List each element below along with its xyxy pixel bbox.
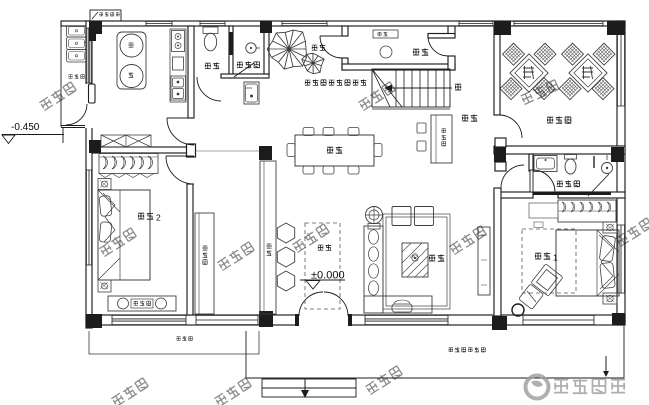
svg-text:-0.450: -0.450: [11, 122, 40, 133]
svg-text:1: 1: [553, 253, 558, 263]
svg-text:2: 2: [156, 213, 161, 223]
